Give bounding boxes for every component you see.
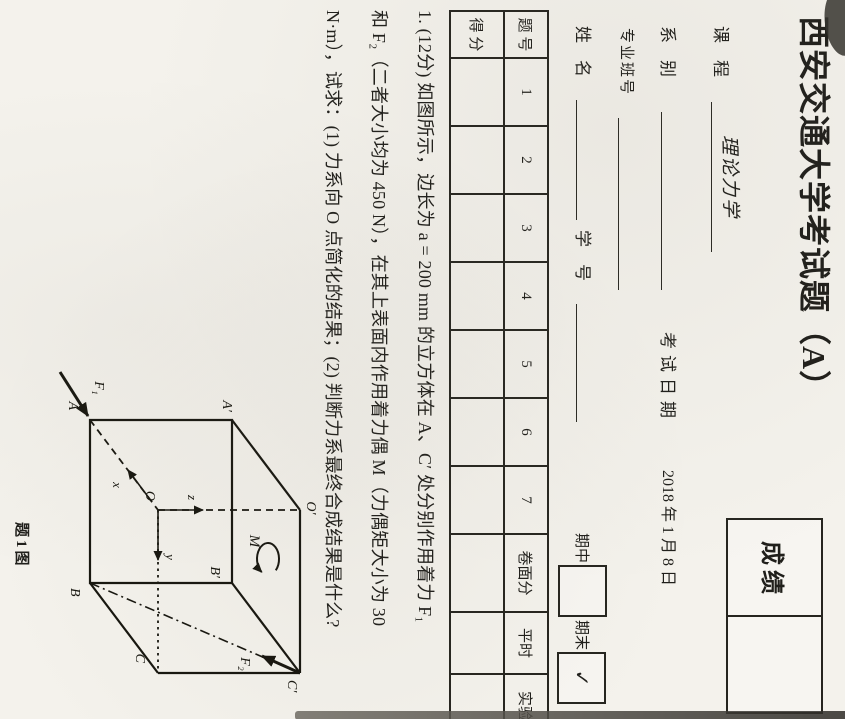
exam-page: 西安交通大学考试题（A） 成绩 课 程 理论力学 系 别 考试日期 2018 年… <box>0 0 845 719</box>
vertex-label-o-prime: O′ <box>303 501 318 515</box>
axis-label-z: z <box>185 494 200 500</box>
final-label: 期末 <box>572 620 593 650</box>
id-label: 学 号 <box>572 230 597 281</box>
moment-arc-arrow <box>257 543 279 572</box>
vertex-label-b: B <box>67 588 82 597</box>
grade-box-value-cell <box>728 617 821 712</box>
score-col-4: 4 <box>505 263 547 331</box>
id-blank <box>576 304 604 422</box>
axis-label-x: x <box>110 481 125 488</box>
midterm-label: 期中 <box>572 533 593 563</box>
grade-box-label-cell: 成绩 <box>728 520 821 617</box>
class-blank <box>618 118 646 290</box>
cube-front-face <box>90 420 232 583</box>
vertex-label-a-prime: A′ <box>219 399 234 413</box>
vertex-label-c-prime: C′ <box>284 680 299 693</box>
score-col-regular: 平时 <box>505 613 547 675</box>
dept-label: 系 别 <box>657 26 682 77</box>
score-col-paper: 卷面分 <box>505 535 547 613</box>
score-cell <box>451 127 503 195</box>
vertex-label-b-prime: B′ <box>207 566 222 579</box>
vertex-label-c: C <box>132 654 147 664</box>
final-checkbox: ✓ <box>557 652 606 704</box>
figure-caption: 题1图 <box>12 522 33 569</box>
vertex-label-a: A <box>65 400 80 410</box>
exam-date-label: 考试日期 <box>657 332 682 424</box>
moment-label-m: M <box>246 534 262 549</box>
score-row-label: 得 分 <box>451 12 503 59</box>
score-cell <box>451 613 503 675</box>
course-label: 课 程 <box>710 26 735 77</box>
dept-blank <box>661 112 689 290</box>
score-table-score-row: 得 分 <box>451 12 505 719</box>
vertex-label-o: O <box>142 491 157 501</box>
name-blank <box>576 100 604 220</box>
axis-label-y: y <box>163 552 178 560</box>
force-label-f2: F₂ <box>237 656 252 671</box>
course-blank: 理论力学 <box>711 102 745 252</box>
score-col-2: 2 <box>505 127 547 195</box>
score-col-3: 3 <box>505 195 547 263</box>
final-checkmark: ✓ <box>569 670 594 687</box>
grade-box-label: 成绩 <box>757 541 792 599</box>
score-cell <box>451 195 503 263</box>
question-line-1: 1. (12分) 如图所示，边长为 a = 200 mm 的立方体在 A、C′ … <box>413 10 439 719</box>
score-col-5: 5 <box>505 331 547 399</box>
exam-title: 西安交通大学考试题（A） <box>793 16 839 403</box>
force-label-f1: F₁ <box>91 380 106 394</box>
score-cell <box>451 59 503 127</box>
score-cell <box>451 263 503 331</box>
score-col-6: 6 <box>505 399 547 467</box>
cube-visible-edges <box>90 420 300 673</box>
score-cell <box>451 331 503 399</box>
course-value: 理论力学 <box>717 135 745 219</box>
grade-box: 成绩 <box>726 518 823 714</box>
score-cell <box>451 535 503 613</box>
midterm-checkbox <box>558 565 607 617</box>
score-table-corner: 题 号 <box>505 12 547 59</box>
score-cell <box>451 467 503 535</box>
score-col-7: 7 <box>505 467 547 535</box>
name-label: 姓 名 <box>572 26 597 77</box>
score-col-1: 1 <box>505 59 547 127</box>
question-line-2: 和 F₂（二者大小均为 450 N），在其上表面内作用着力偶 M（力偶矩大小为 … <box>367 10 393 719</box>
class-label: 专业班号 <box>617 28 638 96</box>
exam-date-value: 2018 年 1 月 8 日 <box>658 470 682 586</box>
score-table: 题 号 1 2 3 4 5 6 7 卷面分 平时 实验 得 分 <box>449 10 549 719</box>
scan-edge-shadow <box>295 711 845 719</box>
score-table-header-row: 题 号 1 2 3 4 5 6 7 卷面分 平时 实验 <box>505 12 547 719</box>
score-cell <box>451 399 503 467</box>
question-figure: A A′ B B′ C C′ O O′ x y z F₁ F₂ M <box>0 350 333 719</box>
scanned-exam-sheet: 西安交通大学考试题（A） 成绩 课 程 理论力学 系 别 考试日期 2018 年… <box>0 0 845 719</box>
